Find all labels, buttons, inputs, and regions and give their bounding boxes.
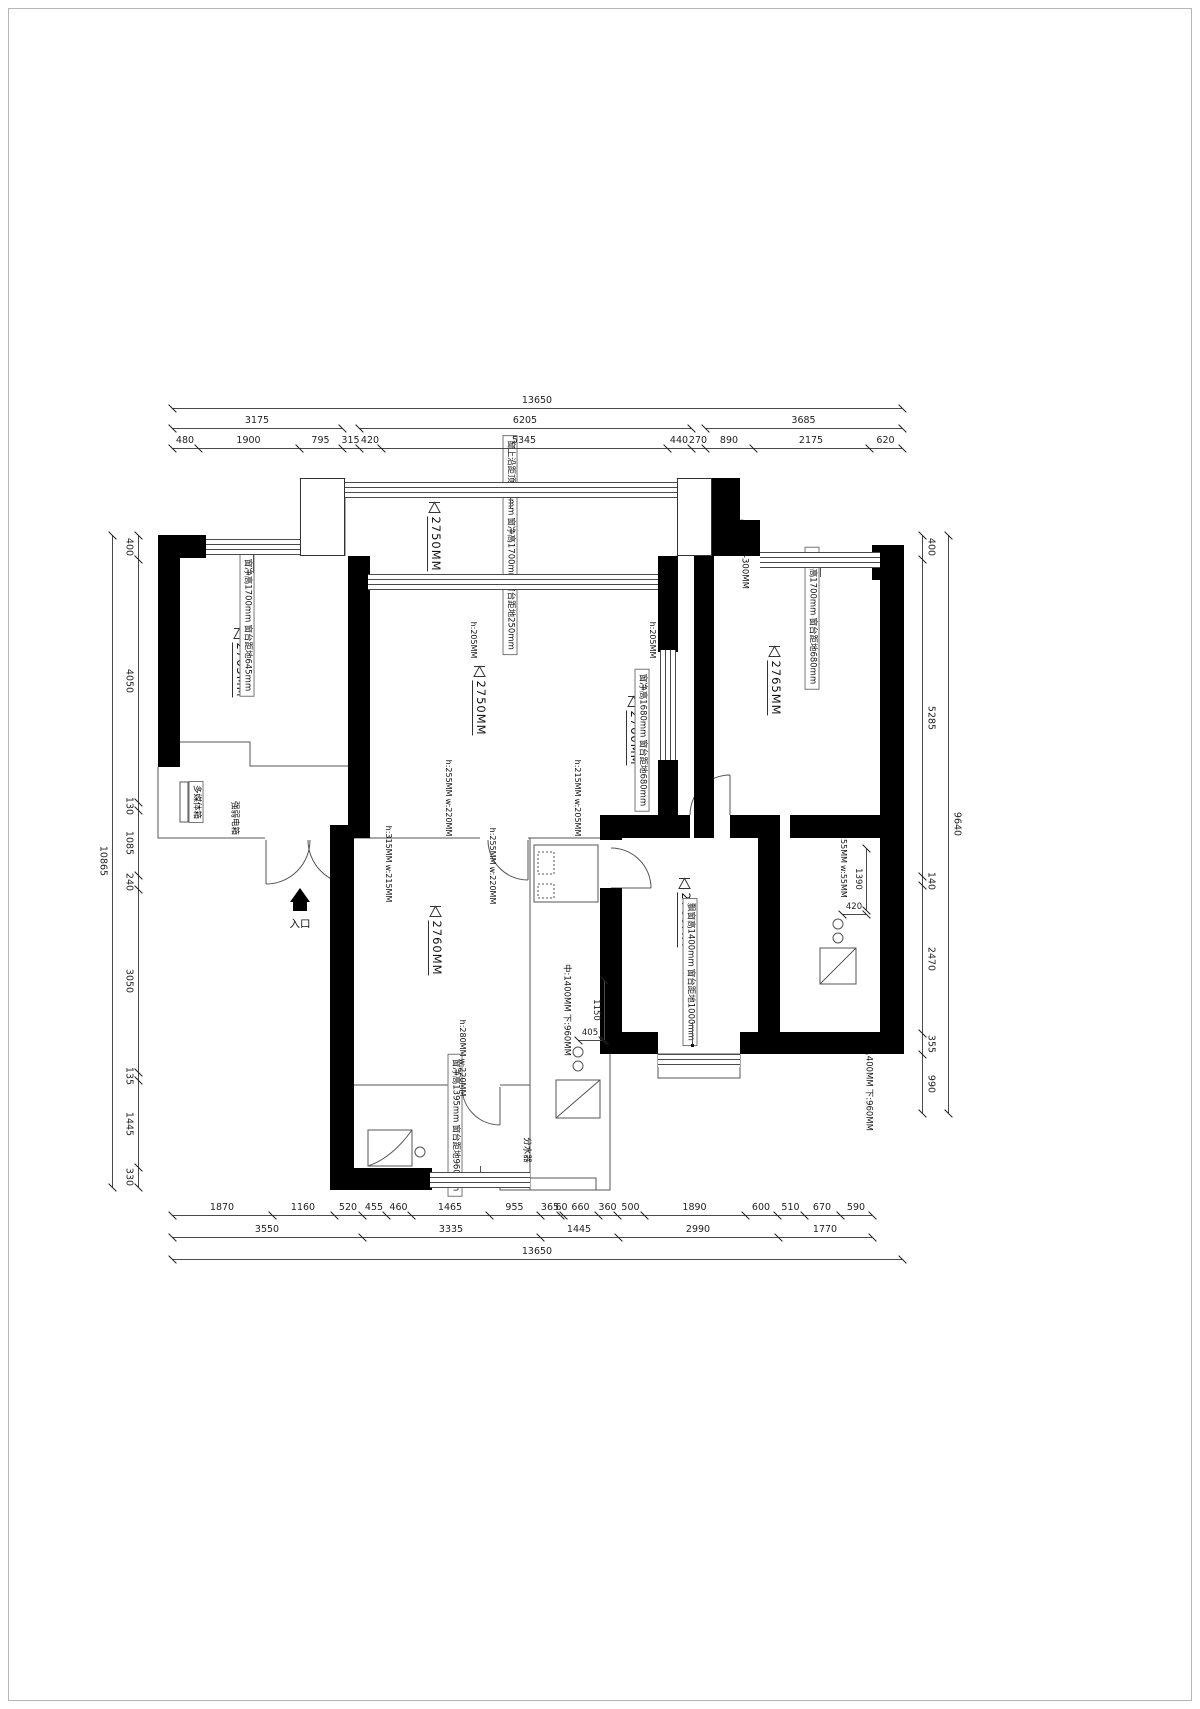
window-note-balcony: 窗上沿距顶400mm窗净高1700mm窗台距地250mm xyxy=(502,435,517,655)
dimension-value: 2470 xyxy=(926,947,937,971)
room-label-top-right: 2765MM xyxy=(767,644,783,715)
ceiling-height-marker-icon xyxy=(474,664,487,677)
room-label-balcony: 2750MM xyxy=(427,500,443,571)
wall-segment xyxy=(694,556,714,838)
window-band xyxy=(760,552,880,568)
beam-note: h:215MMw:205MM xyxy=(572,759,582,838)
structural-column xyxy=(300,478,345,556)
dimension-value: 360 xyxy=(598,1202,616,1213)
window-band xyxy=(430,1172,530,1188)
window-note-lower-right: 飘窗高1400mm窗台距地1000mm xyxy=(682,898,697,1046)
dimension-value: 270 xyxy=(689,435,707,446)
structural-column xyxy=(677,478,712,556)
center-heights-note: 中:1400MM下:960MM xyxy=(560,963,571,1057)
window-leader-dot xyxy=(691,1044,694,1047)
dimension-value: 13650 xyxy=(522,395,552,406)
dimension-line xyxy=(948,535,949,1113)
dimension-line xyxy=(866,848,867,910)
dimension-line xyxy=(922,535,923,1113)
dimension-value: 455 xyxy=(365,1202,383,1213)
room-label-living: 2750MM xyxy=(472,664,488,735)
dimension-value: 5285 xyxy=(926,705,937,729)
dimension-value: 355 xyxy=(926,1034,937,1052)
dimension-value: 3335 xyxy=(439,1224,463,1235)
dimension-value: 480 xyxy=(176,435,194,446)
dimension-line xyxy=(578,1040,602,1041)
beam-note: h:315MMw:215MM xyxy=(383,825,393,904)
wall-segment xyxy=(712,520,760,556)
dimension-value: 1890 xyxy=(682,1202,706,1213)
wall-segment xyxy=(622,815,690,838)
wall-segment xyxy=(880,556,904,838)
dimension-value: 1390 xyxy=(853,868,863,890)
dimension-value: 240 xyxy=(124,873,135,891)
dimension-line xyxy=(172,1237,872,1238)
dimension-line xyxy=(172,1215,872,1216)
dimension-value: 1085 xyxy=(124,830,135,854)
dimension-value: 2175 xyxy=(799,435,823,446)
beam-note: h:255MMw:220MM xyxy=(487,827,497,906)
window-band xyxy=(368,574,658,590)
dimension-value: 315 xyxy=(341,435,359,446)
dimension-value: 400 xyxy=(124,538,135,556)
dimension-value: 600 xyxy=(752,1202,770,1213)
wall-segment xyxy=(348,556,370,838)
wall-segment xyxy=(758,838,780,1054)
ceiling-height-marker-icon xyxy=(430,904,443,917)
dimension-line xyxy=(842,914,866,915)
wall-segment xyxy=(880,838,904,1054)
dimension-value: 1160 xyxy=(291,1202,315,1213)
wall-segment xyxy=(780,1032,882,1054)
dimension-value: 3550 xyxy=(255,1224,279,1235)
dimension-line xyxy=(172,428,342,429)
dimension-line xyxy=(172,408,902,409)
ceiling-height-marker-icon xyxy=(679,876,692,889)
dimension-line xyxy=(604,980,605,1040)
dimension-value: 670 xyxy=(813,1202,831,1213)
dimension-value: 990 xyxy=(926,1074,937,1092)
floorplan-canvas: 2765MM 2750MM 2750MM 2760MM 2765MM 2760M… xyxy=(0,0,1200,1709)
dimension-value: 135 xyxy=(124,1067,135,1085)
dimension-value: 660 xyxy=(571,1202,589,1213)
dimension-value: 405 xyxy=(582,1028,598,1038)
dimension-value: 400 xyxy=(926,538,937,556)
dimension-value: 1770 xyxy=(813,1224,837,1235)
wall-segment xyxy=(600,815,622,840)
dimension-value: 1150 xyxy=(591,999,601,1021)
dimension-value: 1445 xyxy=(124,1111,135,1135)
entrance-label: 入口 xyxy=(290,916,311,931)
beam-note: h:280MMw:220MM xyxy=(457,1019,467,1098)
wall-segment xyxy=(330,825,354,1190)
dimension-value: 140 xyxy=(926,871,937,889)
dimension-value: 1445 xyxy=(567,1224,591,1235)
dimension-line xyxy=(705,428,902,429)
beam-note: h:205MM xyxy=(647,621,657,660)
dimension-value: 60 xyxy=(555,1202,567,1213)
window-band xyxy=(206,539,300,555)
window-band xyxy=(660,650,676,760)
wall-segment xyxy=(730,815,780,838)
dimension-value: 520 xyxy=(339,1202,357,1213)
dimension-line xyxy=(112,535,113,1187)
dimension-value: 330 xyxy=(124,1168,135,1186)
dimension-value: 795 xyxy=(311,435,329,446)
ceiling-height-marker-icon xyxy=(429,500,442,513)
dimension-value: 1900 xyxy=(236,435,260,446)
dimension-line xyxy=(172,448,902,449)
dimension-line xyxy=(359,428,691,429)
room-label-lower-left: 2760MM xyxy=(428,904,444,975)
beam-note: h:255MMw:220MM xyxy=(443,759,453,838)
dimension-value: 590 xyxy=(847,1202,865,1213)
dimension-line xyxy=(138,535,139,1187)
dimension-value: 10865 xyxy=(98,846,109,876)
window-note-top-right: 窗净高1700mm窗台距地680mm xyxy=(804,547,819,690)
dimension-value: 4050 xyxy=(124,668,135,692)
dimension-value: 3175 xyxy=(245,415,269,426)
dimension-value: 9640 xyxy=(952,812,963,836)
dimension-value: 440 xyxy=(670,435,688,446)
dimension-value: 420 xyxy=(361,435,379,446)
leader-line xyxy=(692,1022,693,1044)
dimension-value: 2990 xyxy=(686,1224,710,1235)
beam-note: h:205MM xyxy=(468,621,478,660)
dimension-value: 5345 xyxy=(512,435,536,446)
dimension-value: 500 xyxy=(621,1202,639,1213)
wall-segment xyxy=(790,815,882,838)
multimedia-box-label: 多媒体箱 xyxy=(188,781,203,823)
dimension-value: 3685 xyxy=(791,415,815,426)
dimension-value: 130 xyxy=(124,797,135,815)
window-band xyxy=(345,482,677,498)
dimension-value: 955 xyxy=(505,1202,523,1213)
dimension-value: 1465 xyxy=(438,1202,462,1213)
electric-box-label: 强弱电箱 xyxy=(228,801,239,835)
wall-segment xyxy=(740,1032,780,1054)
window-band xyxy=(658,1054,740,1067)
wall-segment xyxy=(158,535,180,767)
dimension-value: 420 xyxy=(846,902,862,912)
dimension-value: 510 xyxy=(781,1202,799,1213)
dimension-value: 620 xyxy=(876,435,894,446)
window-note-dining: 窗净高1680mm窗台距地680mm xyxy=(634,669,649,812)
window-note-top-left: 窗净高1700mm窗台距地645mm xyxy=(239,554,254,697)
water-manifold-label: 分水器 xyxy=(520,1137,531,1163)
entrance-arrow-icon xyxy=(290,888,310,911)
dimension-value: 460 xyxy=(389,1202,407,1213)
dimension-value: 1870 xyxy=(210,1202,234,1213)
dimension-value: 3050 xyxy=(124,968,135,992)
dimension-value: 13650 xyxy=(522,1246,552,1257)
wall-segment xyxy=(330,1168,432,1190)
plan-linework xyxy=(0,0,1200,1709)
dimension-value: 890 xyxy=(720,435,738,446)
ceiling-height-marker-icon xyxy=(769,644,782,657)
dimension-line xyxy=(172,1259,902,1260)
dimension-value: 6205 xyxy=(513,415,537,426)
wall-segment xyxy=(658,556,678,652)
